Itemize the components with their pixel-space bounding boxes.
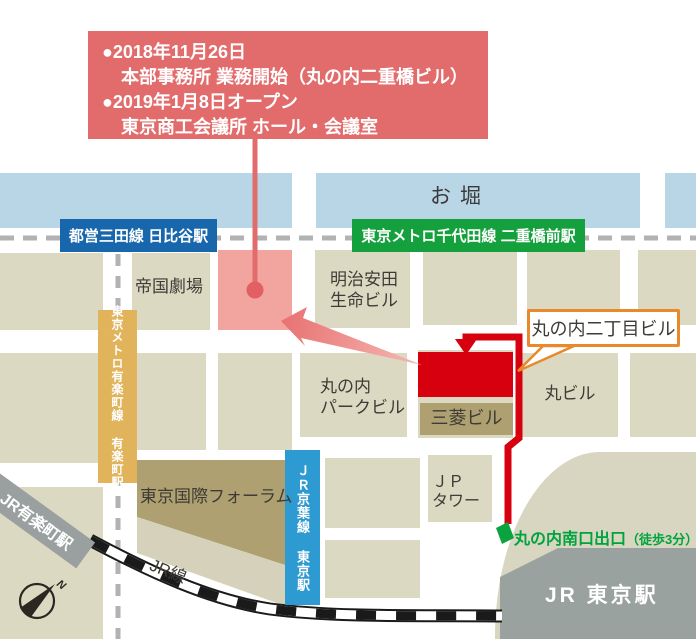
meiji-yasuda-label: 明治安田 生命ビル xyxy=(330,269,398,311)
moat-label: お堀 xyxy=(430,180,490,210)
mita-line-hibiya-station-label: 都営三田線 日比谷駅 xyxy=(60,219,217,252)
target-building-callout-text: 丸の内二丁目ビル xyxy=(532,315,676,341)
keiyo-line-text: ＪＲ京葉線 東京駅 xyxy=(293,464,312,592)
mitsubishi-label: 三菱ビル xyxy=(420,408,513,429)
city-block xyxy=(218,353,292,450)
mita-line-hibiya-text: 都営三田線 日比谷駅 xyxy=(69,225,208,246)
chiyoda-line-nijubashimae-text: 東京メトロ千代田線 二重橋前駅 xyxy=(361,225,575,246)
south-exit-main-text: 丸の内南口出口 xyxy=(514,531,626,548)
city-block xyxy=(0,253,103,330)
info-callout-box: ●2018年11月26日 本部事務所 業務開始（丸の内二重橋ビル） ●2019年… xyxy=(88,31,488,139)
yurakucho-line-bar: 東京メトロ有楽町線 有楽町駅 xyxy=(98,310,137,483)
city-block xyxy=(423,250,517,325)
chiyoda-line-nijubashimae-station-label: 東京メトロ千代田線 二重橋前駅 xyxy=(352,219,585,252)
target-building-callout: 丸の内二丁目ビル xyxy=(527,309,680,347)
jr-tokyo-station-label: JR 東京駅 xyxy=(545,579,659,609)
map-canvas: 都営三田線 日比谷駅 東京メトロ千代田線 二重橋前駅 東京メトロ有楽町線 有楽町… xyxy=(0,0,696,639)
south-exit-label: 丸の内南口出口（徒歩3分） xyxy=(514,525,696,549)
intl-forum-block xyxy=(137,460,285,565)
keiyo-line-bar: ＪＲ京葉線 東京駅 xyxy=(285,450,320,605)
city-block xyxy=(630,353,696,437)
info-line-4: 東京商工会議所 ホール・会議室 xyxy=(102,115,480,140)
south-exit-walk-time: （徒歩3分） xyxy=(626,532,696,547)
moat-water-block xyxy=(665,173,696,228)
marunouchi-park-label: 丸の内 パークビル xyxy=(320,376,405,418)
city-block xyxy=(325,540,420,598)
jr-line-label: JR線 xyxy=(147,551,191,588)
highlight-pink-block xyxy=(218,250,292,330)
teikoku-theater-label: 帝国劇場 xyxy=(135,276,203,297)
info-line-2: 本部事務所 業務開始（丸の内二重橋ビル） xyxy=(102,65,480,90)
city-block xyxy=(132,353,206,450)
info-line-1: ●2018年11月26日 xyxy=(102,40,480,65)
maru-building-label: 丸ビル xyxy=(522,383,618,404)
yurakucho-line-text: 東京メトロ有楽町線 有楽町駅 xyxy=(109,305,126,489)
city-block xyxy=(0,353,103,463)
intl-forum-label: 東京国際フォーラム xyxy=(140,486,293,507)
jp-tower-label: ＪＰ タワー xyxy=(432,473,480,511)
target-building xyxy=(418,352,513,397)
info-line-3: ●2019年1月8日オープン xyxy=(102,90,480,115)
city-block xyxy=(325,458,420,528)
